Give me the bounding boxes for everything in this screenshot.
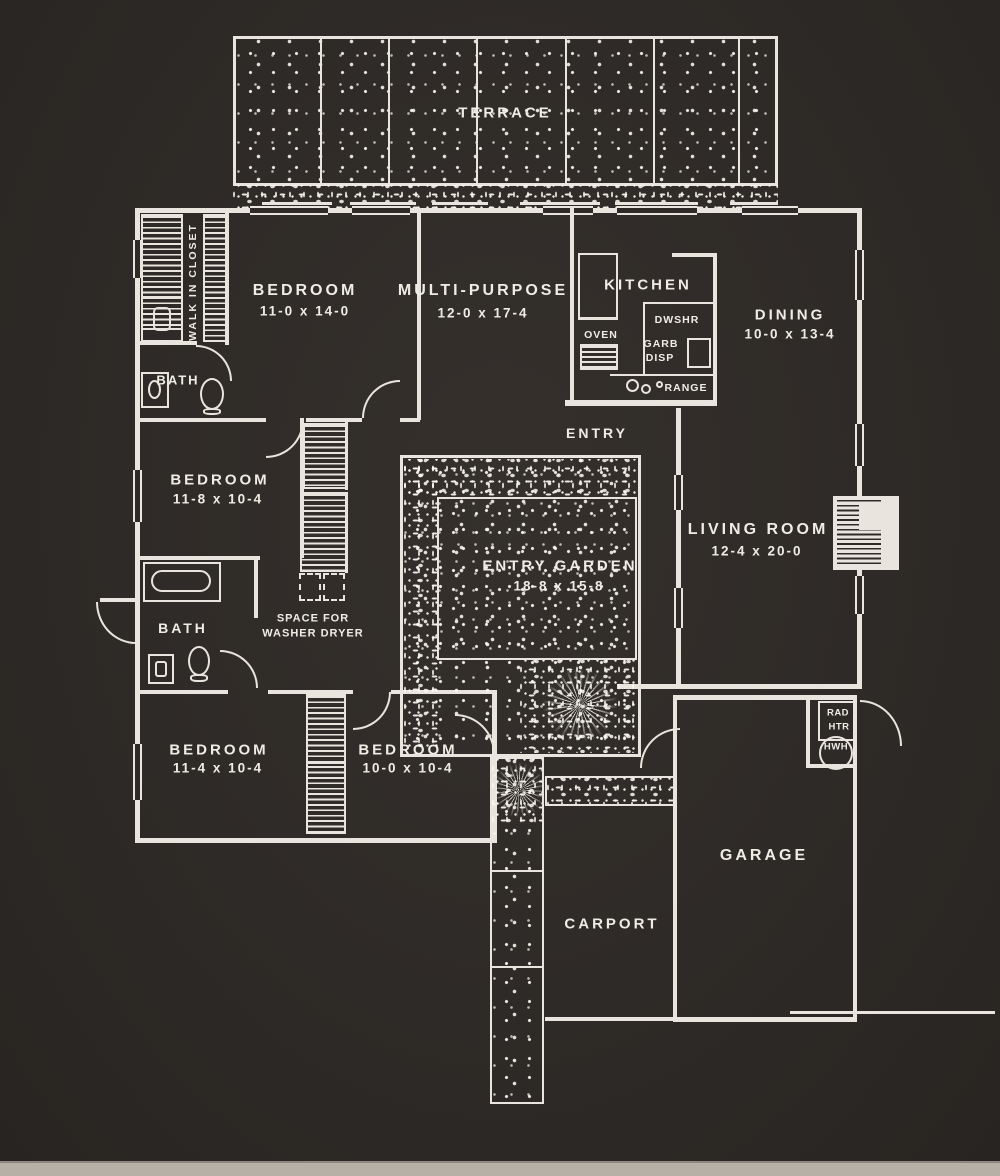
sink-basin: [148, 380, 161, 399]
living-room-label: LIVING ROOM: [688, 522, 829, 538]
entry-garden-label: ENTRY GARDEN: [482, 559, 637, 574]
range-burner: [641, 384, 651, 394]
door-arc-bedroom2: [266, 420, 304, 458]
door-header: [520, 202, 600, 205]
garden-border-right: [638, 455, 641, 757]
multipurpose-label: MULTI-PURPOSE: [398, 283, 568, 299]
hall-closet: [303, 423, 347, 489]
wall-garage-bottom: [673, 1017, 857, 1022]
wall-bath2-east: [254, 556, 258, 618]
laundry-label-2: WASHER DRYER: [262, 629, 363, 640]
sink: [141, 372, 169, 408]
window-opening: [543, 206, 593, 215]
vanity-basin: [153, 307, 171, 331]
walkway-shrub-burst: [494, 760, 544, 820]
fireplace: [833, 496, 899, 570]
rad-label: RAD: [827, 708, 849, 718]
kitchen-sink: [687, 338, 711, 368]
wall-garage-left: [673, 695, 677, 1022]
fireplace-firebox: [859, 504, 881, 530]
window-opening: [617, 206, 697, 215]
dining-dims: 10-0 x 13-4: [744, 327, 835, 341]
carport-label: CARPORT: [564, 917, 659, 932]
bedroom1-label: BEDROOM: [253, 283, 358, 299]
walkway-joint: [492, 870, 542, 872]
bath2-label: BATH: [158, 621, 208, 635]
window-opening: [674, 475, 683, 510]
bathtub-basin: [151, 570, 211, 592]
vanity-fixture: [141, 296, 183, 342]
door-header: [432, 202, 488, 205]
dining-label: DINING: [755, 308, 826, 323]
garden-foliage-left: [404, 459, 438, 754]
bathtub: [143, 562, 221, 602]
closet-divider: [308, 762, 344, 764]
window-opening: [855, 250, 864, 300]
wall-kitchen-east: [713, 253, 717, 405]
scan-edge: [0, 1161, 1000, 1176]
toilet-tank: [203, 408, 221, 415]
wall-bedrooms-north: [135, 690, 228, 694]
wall-hall-north: [400, 418, 420, 422]
carport-planting-strip: [545, 776, 676, 806]
bedroom4-dims: 10-0 x 10-4: [362, 761, 453, 775]
refrigerator: [578, 253, 618, 319]
door-arc-multipurpose: [362, 380, 400, 418]
wall-bedroom2-north: [135, 418, 266, 422]
walkway-joint: [492, 966, 542, 968]
window-opening: [250, 206, 328, 215]
walk-in-closet-label: WALK IN CLOSET: [188, 223, 199, 341]
terrace-divider: [388, 38, 390, 184]
bedroom-closets: [306, 694, 346, 834]
bedroom1-dims: 11-0 x 14-0: [260, 304, 350, 318]
door-arc-bedroom4: [353, 692, 391, 730]
terrace-divider: [653, 38, 655, 184]
door-header: [730, 202, 778, 205]
bedroom3-dims: 11-4 x 10-4: [173, 761, 263, 775]
floor-plan: TERRACE WALK IN CLOSET BATH BEDROOM 11-0…: [0, 0, 1000, 1176]
door-arc-bath2-exterior: [96, 602, 136, 644]
dryer-space: [323, 573, 345, 601]
window-opening: [352, 206, 410, 215]
door-arc-closet: [196, 345, 232, 381]
dishwasher-label: DWSHR: [655, 315, 700, 326]
wall-living-west: [676, 408, 681, 688]
laundry-label-1: SPACE FOR: [277, 614, 349, 625]
entry-label: ENTRY: [566, 426, 628, 440]
oven-fixture: [580, 344, 618, 370]
counter-line: [610, 374, 717, 376]
wall-bedroom2-north: [306, 418, 362, 422]
wall-garage-top: [673, 695, 857, 700]
wall-bedroom1-east: [417, 208, 421, 420]
wall-kitchen-top: [672, 253, 717, 257]
window-opening: [133, 744, 142, 800]
sink: [148, 654, 174, 684]
window-opening: [133, 470, 142, 522]
window-opening: [855, 424, 864, 466]
range-burner: [656, 381, 663, 388]
door-arc-bath2-hall: [220, 650, 258, 688]
wall-multipurpose-east: [570, 208, 574, 406]
entry-garden-dims: 18-8 x 15-8: [513, 579, 604, 593]
terrace-divider: [738, 38, 740, 184]
multipurpose-dims: 12-0 x 17-4: [437, 306, 528, 320]
kitchen-counter-front: [565, 400, 717, 406]
sink-basin: [155, 661, 167, 677]
window-opening: [742, 206, 798, 215]
hall-closet: [300, 492, 347, 572]
garage-label: GARAGE: [720, 848, 808, 864]
door-header: [350, 202, 416, 205]
disp-label: DISP: [646, 353, 675, 364]
wall-carport-bottom: [545, 1017, 675, 1021]
wall-living-bottom: [617, 684, 862, 689]
door-arc-utility-exterior: [860, 700, 902, 746]
washer-space: [299, 573, 321, 601]
closet-shelving: [203, 214, 227, 342]
garb-label: GARB: [644, 339, 679, 350]
garden-border-top: [400, 455, 641, 458]
bedroom2-dims: 11-8 x 10-4: [173, 492, 263, 506]
terrace-label: TERRACE: [458, 106, 552, 121]
door-header: [262, 202, 332, 205]
terrace-divider: [320, 38, 322, 184]
toilet-tank: [190, 674, 208, 682]
living-room-dims: 12-4 x 20-0: [711, 544, 802, 558]
terrace-divider: [565, 38, 567, 184]
counter-line: [643, 302, 715, 304]
range-label: RANGE: [665, 383, 708, 394]
toilet: [200, 378, 224, 410]
hwh-label: HWH: [824, 742, 848, 752]
oven-label: OVEN: [584, 330, 618, 341]
garden-border-left: [400, 455, 403, 757]
wall-bath2-north: [135, 556, 260, 560]
driveway-line: [790, 1011, 995, 1014]
counter-line: [578, 318, 618, 320]
door-header: [615, 202, 698, 205]
wall-utility-west: [806, 695, 810, 768]
wall-garage-right: [853, 695, 857, 1022]
window-opening: [855, 576, 864, 614]
toilet: [188, 646, 210, 676]
wall-bedroom-wing-bottom: [135, 838, 497, 843]
garden-shrub-burst: [543, 668, 617, 742]
htr-label: HTR: [828, 722, 849, 732]
window-opening: [674, 588, 683, 628]
range-burner: [626, 379, 639, 392]
bedroom3-label: BEDROOM: [169, 743, 268, 758]
bedroom2-label: BEDROOM: [170, 473, 269, 488]
garden-foliage-top: [404, 459, 638, 497]
